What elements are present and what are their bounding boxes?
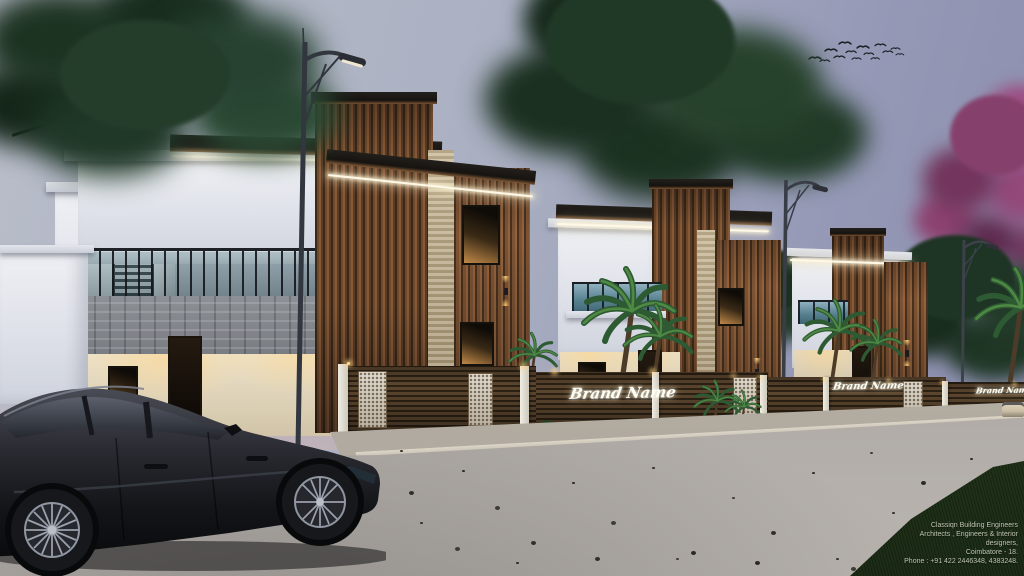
brand-sign-2: Brand Name [832, 380, 904, 392]
brand-sign-3: Brand Name [975, 385, 1024, 396]
villa-1-window-upper [462, 205, 500, 265]
brand-sign-1: Brand Name [568, 383, 677, 403]
gate-pillar [520, 366, 529, 430]
rear-wheel [11, 489, 93, 571]
villa-1-cnc-panel-2 [468, 373, 493, 426]
watermark: Classiqn Building Engineers Architects ,… [890, 521, 1018, 566]
palm-tree [968, 262, 1024, 392]
flowering-canopy [950, 95, 1024, 175]
villa-1-window-lower [460, 322, 494, 366]
fallen-leaves [400, 450, 403, 452]
watermark-line-4: Phone : +91 422 2446348, 4383248. [890, 557, 1018, 566]
left-boundary-roof [0, 245, 94, 253]
left-tree-canopy [60, 20, 230, 130]
watermark-line-1: Classiqn Building Engineers [890, 521, 1018, 530]
villa-2-window-upper [718, 288, 744, 326]
parked-sedan [0, 372, 386, 576]
villa-1-wall-sconce [500, 276, 511, 306]
center-tree-canopy [545, 0, 735, 105]
architectural-render-scene: Brand Name Brand Name Brand Name Classiq… [0, 0, 1024, 576]
villa-3-tower-fascia [830, 228, 886, 236]
birds-flock [805, 32, 905, 77]
front-wheel [282, 464, 358, 540]
distant-parked-car [1002, 402, 1024, 417]
watermark-line-3: Coimbatore - 18. [890, 548, 1018, 557]
watermark-line-2: Architects , Engineers & Interior design… [890, 530, 1018, 548]
villa-2-tower-fascia [649, 179, 733, 189]
